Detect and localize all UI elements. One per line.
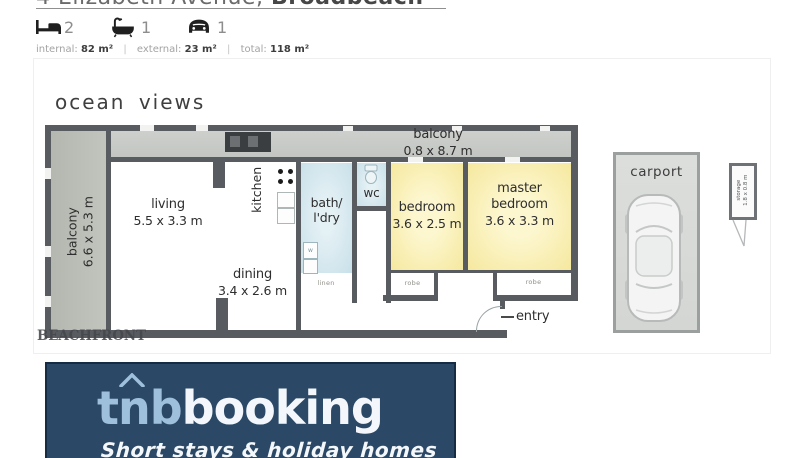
bed-icon: [34, 17, 62, 41]
baths-count: 1: [141, 18, 151, 37]
room-name: kitchen: [249, 167, 264, 213]
room-dims: 3.6 x 2.5 m: [392, 216, 461, 231]
carport-label: carport: [613, 164, 700, 180]
stove-burner-icon: [288, 179, 293, 184]
wall-segment: [296, 158, 301, 330]
wall-segment: [352, 206, 389, 211]
room-balcony-top: [108, 130, 571, 158]
kitchen-counter: [277, 208, 295, 224]
dining-label: dining 3.4 x 2.6 m: [205, 267, 300, 300]
floorplan-page: 4 Elizabeth Avenue, Broadbeach 2 1 1 int…: [0, 0, 800, 458]
room-dims: 3.6 x 3.3 m: [485, 213, 554, 228]
house-roof-icon: [119, 372, 145, 391]
wall-segment: [45, 125, 578, 131]
area-stats: internal: 82 m² | external: 23 m² | tota…: [36, 44, 309, 55]
brand-suffix: booking: [182, 381, 383, 435]
total-label: total:: [241, 44, 267, 55]
room-dims: 1.8 x 0.8 m: [743, 174, 749, 205]
room-name: balcony: [64, 207, 79, 256]
room-name: dining: [233, 267, 272, 282]
ocean-views-note: ocean views: [55, 90, 205, 114]
room-name: bath/: [311, 195, 343, 210]
room-dims: 6.6 x 5.3 m: [80, 196, 95, 267]
internal-label: internal:: [36, 44, 78, 55]
bath-laundry-label: bath/ l'dry: [301, 195, 352, 226]
title-underline: [36, 8, 446, 9]
stats-divider: |: [227, 44, 230, 55]
master-bedroom-label: master bedroom 3.6 x 3.3 m: [468, 181, 571, 230]
room-name: balcony: [413, 127, 462, 142]
car-topview-icon: [622, 191, 686, 329]
window-gap: [140, 125, 154, 131]
washing-machine-icon: w: [303, 242, 318, 259]
stove-burner-icon: [288, 169, 293, 174]
external-label: external:: [137, 44, 182, 55]
washer-label: w: [304, 243, 317, 258]
window-gap: [505, 157, 520, 162]
storage-door-arc: [730, 219, 750, 253]
bedroom-label: bedroom 3.6 x 2.5 m: [390, 200, 464, 233]
internal-value: 82 m²: [81, 44, 113, 55]
room-name: living: [151, 197, 185, 212]
wall-segment: [108, 157, 571, 162]
window-gap: [343, 126, 353, 131]
window-gap: [45, 246, 51, 257]
wc-label: wc: [357, 186, 386, 201]
entry-pointer-line: [501, 316, 514, 318]
linen-label: linen: [301, 279, 351, 287]
stats-divider: |: [123, 44, 126, 55]
kitchen-label: kitchen: [249, 160, 265, 220]
wall-segment: [106, 130, 111, 330]
window-gap: [196, 125, 208, 131]
wall-segment: [386, 270, 576, 273]
brand-tagline: Short stays & holiday homes: [100, 438, 438, 458]
balcony-top-label: balcony 0.8 x 8.7 m: [388, 127, 488, 160]
room-dims: 0.8 x 8.7 m: [403, 143, 472, 158]
entry-label: entry: [516, 309, 562, 325]
room-name: l'dry: [313, 210, 339, 225]
wall-segment: [383, 295, 438, 301]
window-gap: [45, 168, 51, 179]
laundry-tub-icon: [303, 259, 318, 274]
room-name: bedroom: [491, 197, 548, 212]
kitchen-sink: [248, 136, 258, 147]
wall-segment: [571, 125, 578, 301]
window-gap: [540, 126, 550, 131]
wall-segment: [493, 295, 578, 301]
living-label: living 5.5 x 3.3 m: [118, 197, 218, 230]
room-name: wc: [363, 186, 379, 200]
room-name: bedroom: [399, 200, 456, 215]
room-dims: 5.5 x 3.3 m: [133, 213, 202, 228]
wall-segment: [352, 158, 357, 303]
storage-label: storage 1.8 x 0.8 m: [736, 163, 750, 217]
external-value: 23 m²: [185, 44, 217, 55]
stove-burner-icon: [278, 179, 283, 184]
room-name: master: [497, 181, 542, 196]
cars-count: 1: [217, 18, 227, 37]
kitchen-counter: [277, 192, 295, 208]
kitchen-sink: [230, 136, 240, 147]
beds-count: 2: [64, 18, 74, 37]
robe-label: robe: [391, 279, 434, 287]
balcony-left-label: balcony 6.6 x 5.3 m: [64, 172, 95, 292]
room-name: storage: [736, 180, 742, 201]
window-gap: [45, 296, 51, 307]
beachfront-watermark: BEACHFRONT: [37, 328, 146, 344]
robe-label: robe: [497, 278, 570, 286]
bath-icon: [110, 16, 136, 42]
total-value: 118 m²: [270, 44, 309, 55]
stove-burner-icon: [278, 169, 283, 174]
room-dims: 3.4 x 2.6 m: [218, 283, 287, 298]
car-icon: [186, 16, 212, 41]
wall-segment: [213, 158, 225, 188]
wall-segment: [216, 298, 228, 330]
